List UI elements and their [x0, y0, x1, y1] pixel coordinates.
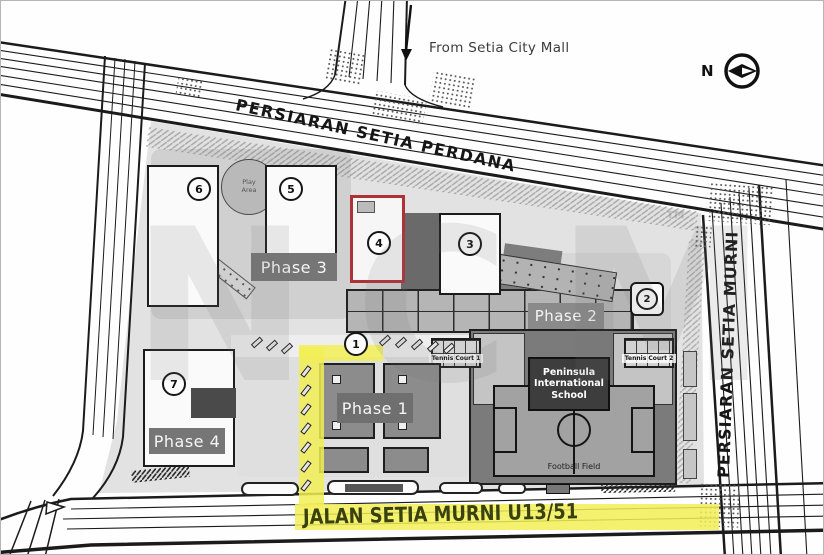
field-penalty-box-right	[631, 407, 653, 453]
roadside-structure	[241, 482, 299, 496]
marker-5: 5	[279, 177, 303, 201]
marker-7: 7	[162, 372, 186, 396]
building-5	[265, 165, 337, 263]
compass-icon	[719, 50, 767, 94]
roadside-structure	[439, 482, 483, 494]
site-plan-map: Tennis Court 1 Tennis Court 2 Football F…	[0, 0, 824, 555]
block-core	[398, 375, 407, 384]
marker-2: 2	[636, 288, 658, 310]
tennis-court-2	[624, 338, 674, 368]
roadside-structure-core	[345, 484, 403, 492]
building-4-detail	[357, 201, 375, 213]
compass-n-label: N	[701, 62, 714, 80]
block-core	[332, 375, 341, 384]
phase2-label: Phase 2	[528, 303, 604, 329]
tennis-court-2-label: Tennis Court 2	[622, 354, 676, 363]
parking-strip	[683, 449, 697, 479]
building-7-core	[191, 388, 236, 418]
phase3-label: Phase 3	[251, 253, 337, 281]
field-penalty-box-left	[495, 407, 517, 453]
phase4-label: Phase 4	[149, 428, 225, 454]
marker-3: 3	[458, 232, 482, 256]
football-field-label: Football Field	[495, 462, 653, 471]
marker-2-plate: 2	[630, 282, 664, 316]
marker-4: 4	[367, 231, 391, 255]
watermark-tm: ™	[663, 207, 689, 237]
roadside-structure	[498, 483, 526, 494]
play-area-label: Play Area	[236, 179, 262, 195]
tennis-court-1-label: Tennis Court 1	[429, 354, 483, 363]
phase1-label: Phase 1	[337, 393, 413, 423]
parking-strip	[683, 393, 697, 441]
marker-6: 6	[187, 177, 211, 201]
bus-stop	[546, 484, 570, 494]
parking-strip	[683, 351, 697, 387]
marker-1: 1	[344, 332, 368, 356]
from-mall-label: From Setia City Mall	[429, 40, 569, 56]
phase1-block	[383, 447, 429, 473]
field-center-circle	[557, 413, 591, 447]
school-name-plate: Peninsula International School	[528, 357, 610, 411]
road-west-lines	[53, 56, 145, 498]
phase1-block	[319, 447, 369, 473]
